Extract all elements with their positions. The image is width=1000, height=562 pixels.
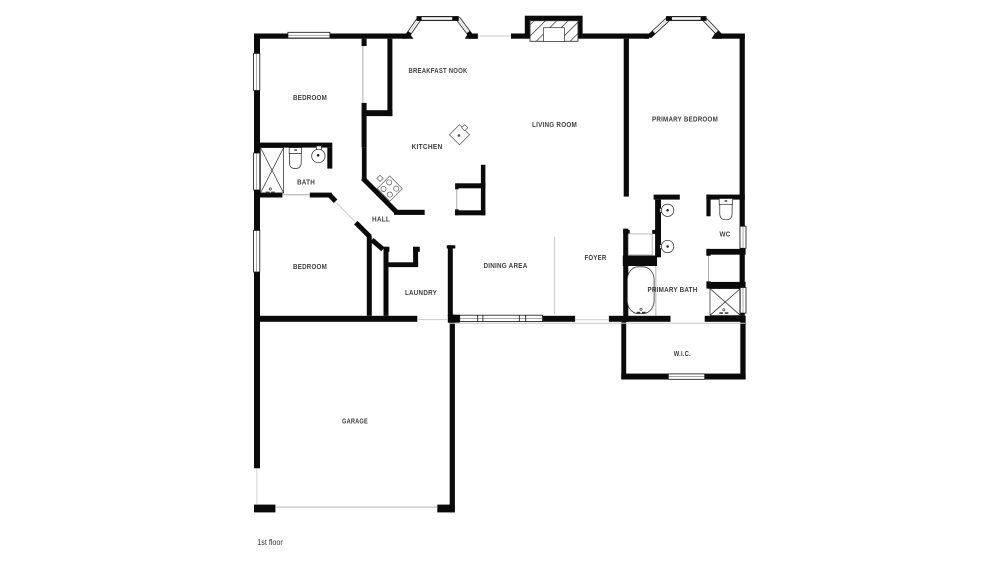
svg-text:HALL: HALL <box>372 214 390 223</box>
svg-text:PRIMARY BEDROOM: PRIMARY BEDROOM <box>652 114 718 123</box>
svg-text:KITCHEN: KITCHEN <box>412 142 443 151</box>
svg-text:FOYER: FOYER <box>585 253 607 262</box>
svg-text:LIVING ROOM: LIVING ROOM <box>532 120 577 129</box>
svg-text:DINING AREA: DINING AREA <box>484 261 528 270</box>
svg-text:BEDROOM: BEDROOM <box>293 93 327 102</box>
svg-text:WC: WC <box>720 229 731 238</box>
svg-text:BATH: BATH <box>297 177 315 186</box>
svg-text:LAUNDRY: LAUNDRY <box>405 288 437 297</box>
svg-text:W.I.C.: W.I.C. <box>674 349 691 358</box>
svg-text:BREAKFAST NOOK: BREAKFAST NOOK <box>409 66 468 75</box>
svg-text:GARAGE: GARAGE <box>342 417 368 426</box>
svg-text:1st floor: 1st floor <box>257 538 283 547</box>
svg-text:PRIMARY BATH: PRIMARY BATH <box>648 285 698 294</box>
svg-text:BEDROOM: BEDROOM <box>293 262 327 271</box>
